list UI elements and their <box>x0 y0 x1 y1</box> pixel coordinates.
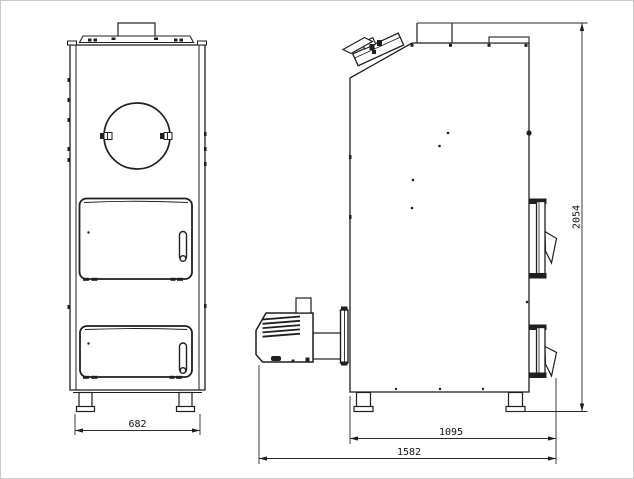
front-view: 682 <box>68 23 207 435</box>
side-body <box>350 43 529 392</box>
side-panel-cap-right <box>198 41 207 45</box>
lower-door-handle-side <box>545 347 557 377</box>
side-flue-collar <box>417 23 452 43</box>
upper-door-handle-side <box>545 232 557 264</box>
top-access-plate <box>489 37 529 43</box>
front-legs <box>77 393 195 412</box>
upper-door-side-profile <box>530 199 557 279</box>
dim-label-2054: 2054 <box>572 205 583 229</box>
burner-tube <box>313 333 341 359</box>
dim-label-1582: 1582 <box>397 447 421 458</box>
boiler-technical-drawing: 682 <box>0 0 634 479</box>
pellet-burner <box>256 298 348 366</box>
side-view <box>256 23 557 412</box>
dim-label-1095: 1095 <box>439 427 463 438</box>
upper-door <box>80 199 193 281</box>
lower-door <box>80 326 192 379</box>
lower-door-side-profile <box>530 325 557 379</box>
side-panel-cap-left <box>68 41 77 45</box>
side-legs <box>354 393 525 412</box>
burner-mounting-flange <box>341 307 349 366</box>
burner-top-stub <box>296 298 311 313</box>
dimension-front-width: 682 <box>75 414 200 435</box>
dim-label-682: 682 <box>128 419 146 430</box>
drawing-svg: 682 <box>0 0 634 479</box>
burner-body <box>256 313 313 362</box>
